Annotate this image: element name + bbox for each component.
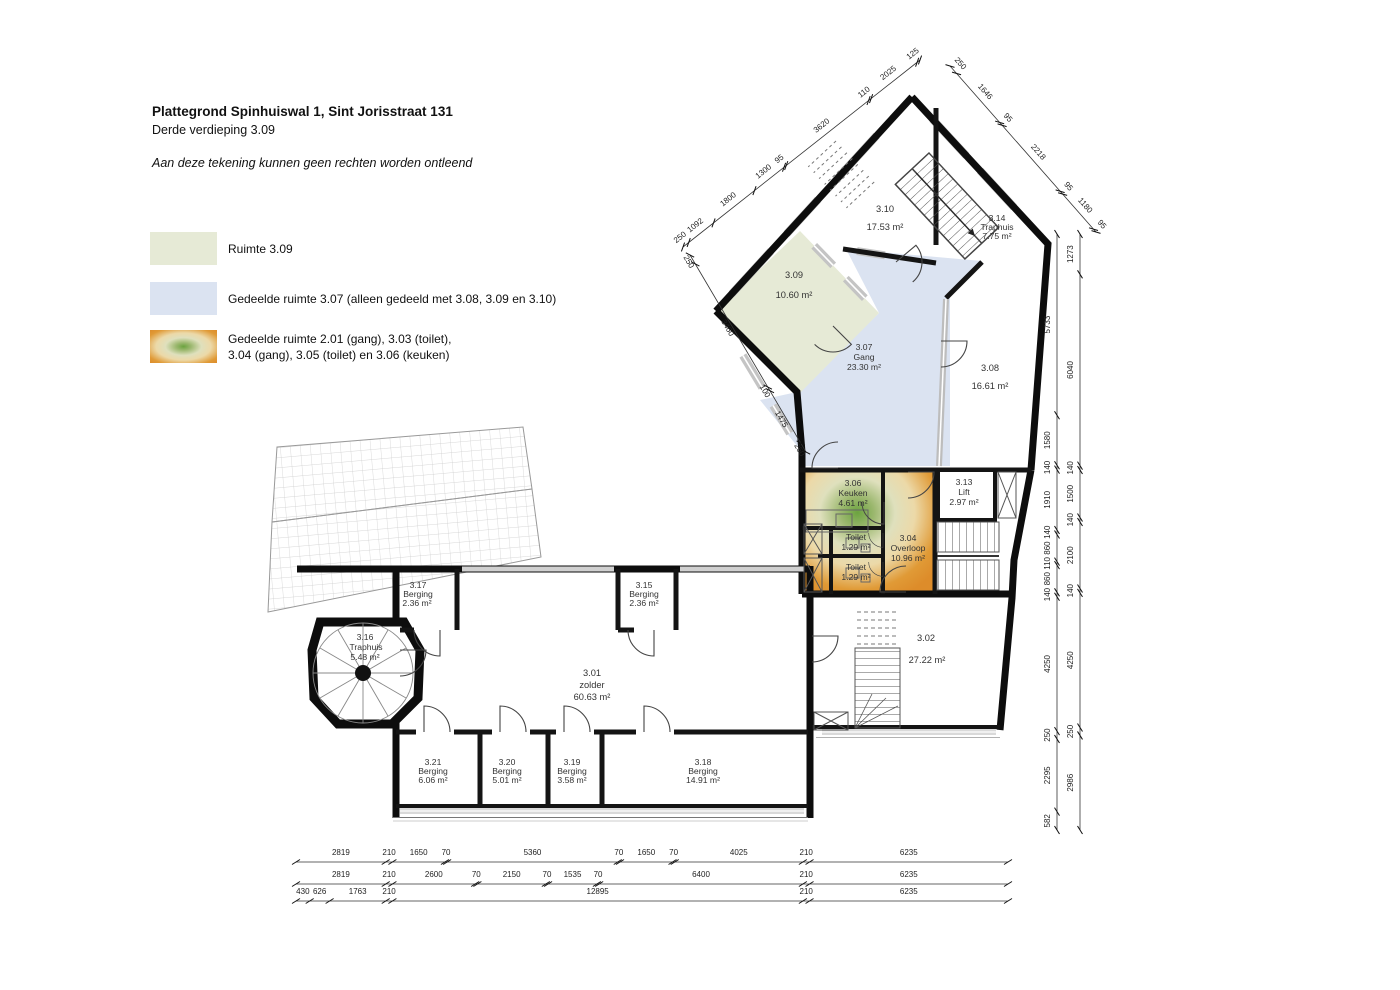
dim-label: 4250: [1066, 651, 1075, 669]
dim-label: 6040: [1066, 361, 1075, 379]
room-area: 17.53 m²: [867, 222, 904, 232]
dim-label: 5733: [1043, 315, 1052, 333]
room-id: 3.08: [981, 363, 999, 373]
dim-label: 2100: [1066, 546, 1075, 564]
room-name: Toilet: [846, 562, 867, 572]
title-block: Plattegrond Spinhuiswal 1, Sint Jorisstr…: [152, 103, 453, 139]
room-label-3.21: 3.21 Berging 6.06 m²: [418, 757, 448, 785]
room-area: 10.60 m²: [776, 290, 813, 300]
legend-label: Gedeelde ruimte 3.07 (alleen gedeeld met…: [228, 291, 556, 307]
dim-chain-right-inner: 5733158014019101408601108601404250250229…: [1043, 230, 1060, 834]
dim-label: 5360: [524, 848, 542, 857]
dim-label: 70: [442, 848, 451, 857]
room-label-3.08: 3.08 16.61 m²: [972, 363, 1009, 391]
dim-label: 1535: [564, 870, 582, 879]
room-name: Overloop: [891, 543, 926, 553]
dim-label: 582: [1043, 814, 1052, 828]
room-area: 60.63 m²: [574, 692, 611, 702]
legend-item-ruimte-309: Ruimte 3.09: [150, 232, 293, 265]
room-area: 5.01 m²: [492, 775, 521, 785]
dim-label: 430: [296, 887, 310, 896]
room-name: Gang: [853, 352, 874, 362]
room-id: 3.16: [357, 632, 374, 642]
room-label-3.10: 3.10 17.53 m²: [867, 204, 904, 232]
dim-label: 140: [1066, 513, 1075, 527]
dim-label: 250: [1066, 724, 1075, 738]
room-name: Keuken: [838, 488, 867, 498]
room-id: 3.06: [845, 478, 862, 488]
room-area: 1.29 m²: [841, 542, 870, 552]
dim-label: 6235: [900, 848, 918, 857]
dim-label: 100: [758, 383, 773, 400]
dim-label: 95: [773, 152, 786, 165]
dim-label: 210: [800, 848, 814, 857]
dim-label: 2295: [1043, 766, 1052, 784]
dim-label: 250: [953, 55, 969, 71]
room-area: 5.48 m²: [350, 652, 379, 662]
room-area: 27.22 m²: [909, 655, 946, 665]
room-id: 3.02: [917, 633, 935, 643]
dim-label: 4250: [1043, 654, 1052, 672]
dim-label: 2819: [332, 848, 350, 857]
dim-label: 95: [1002, 111, 1015, 124]
dim-label: 1763: [349, 887, 367, 896]
stairs-overloop: [937, 522, 999, 590]
dim-label: 95: [1062, 180, 1075, 193]
page-title: Plattegrond Spinhuiswal 1, Sint Jorisstr…: [152, 103, 453, 121]
dim-label: 210: [800, 887, 814, 896]
room-area: 2.36 m²: [629, 598, 658, 608]
dim-label: 70: [542, 870, 551, 879]
dim-label: 70: [669, 848, 678, 857]
dim-label: 70: [614, 848, 623, 857]
dim-label: 860: [1043, 541, 1052, 555]
dim-label: 1650: [637, 848, 655, 857]
room-area: 6.06 m²: [418, 775, 447, 785]
disclaimer-text: Aan deze tekening kunnen geen rechten wo…: [152, 156, 472, 170]
room-label-3.02: 3.02 27.22 m²: [909, 633, 946, 665]
room-area: 10.96 m²: [891, 553, 925, 563]
page-subtitle: Derde verdieping 3.09: [152, 121, 453, 139]
dim-label: 140: [1043, 587, 1052, 601]
stairs-3.02: [855, 612, 900, 728]
dim-label: 2600: [425, 870, 443, 879]
dim-label: 95: [1096, 218, 1109, 231]
room-label-3.01: 3.01 zolder 60.63 m²: [574, 668, 611, 702]
room-id: 3.10: [876, 204, 894, 214]
dim-label: 140: [1043, 460, 1052, 474]
dim-label: 860: [1043, 572, 1052, 586]
room-area: 7.75 m²: [982, 231, 1011, 241]
room-area: 2.36 m²: [402, 598, 431, 608]
legend-swatch-orange-gradient: [150, 330, 217, 363]
dim-label: 1500: [1066, 484, 1075, 502]
dim-label: 140: [1066, 583, 1075, 597]
dim-label: 140: [1066, 461, 1075, 475]
dim-label: 6235: [900, 887, 918, 896]
dim-label: 210: [382, 870, 396, 879]
dim-label: 250: [1043, 728, 1052, 742]
dim-label: 2150: [503, 870, 521, 879]
room-name: Toilet: [846, 532, 867, 542]
dim-label: 6235: [900, 870, 918, 879]
room-id: 3.13: [956, 477, 973, 487]
floor-plan-page: Plattegrond Spinhuiswal 1, Sint Jorisstr…: [0, 0, 1400, 990]
room-area: 2.97 m²: [949, 497, 978, 507]
dim-label: 250: [672, 229, 688, 245]
legend-label: Gedeelde ruimte 2.01 (gang), 3.03 (toile…: [228, 331, 451, 363]
dim-label: 6400: [692, 870, 710, 879]
room-label-3.18: 3.18 Berging 14.91 m²: [686, 757, 720, 785]
legend-label: Ruimte 3.09: [228, 241, 293, 257]
dim-label: 210: [382, 887, 396, 896]
room-area: 3.58 m²: [557, 775, 586, 785]
room-area: 4.61 m²: [838, 498, 867, 508]
dim-chain-bottom-3: 4306261763210128952106235: [292, 887, 1012, 904]
dim-chain-bottom-2: 281921026007021507015357064002106235: [292, 870, 1012, 887]
legend-swatch-green: [150, 232, 217, 265]
dim-label: 12895: [587, 887, 610, 896]
room-id: 3.04: [900, 533, 917, 543]
dim-label: 2986: [1066, 773, 1075, 791]
room-area: 16.61 m²: [972, 381, 1009, 391]
floor-plan-drawing: 3.01 zolder 60.63 m² 3.02 27.22 m² 3.06 …: [0, 0, 1400, 990]
room-area: 14.91 m²: [686, 775, 720, 785]
room-label-3.20: 3.20 Berging 5.01 m²: [492, 757, 522, 785]
room-area: 23.30 m²: [847, 362, 881, 372]
room-id: 3.01: [583, 668, 601, 678]
dim-label: 1910: [1043, 490, 1052, 508]
dim-label: 140: [1043, 525, 1052, 539]
room-name: Traphuis: [349, 642, 382, 652]
dim-label: 70: [472, 870, 481, 879]
dim-label: 2819: [332, 870, 350, 879]
room-name: zolder: [579, 680, 604, 690]
room-label-3.15: 3.15 Berging 2.36 m²: [629, 580, 659, 608]
room-area: 1.29 m²: [841, 572, 870, 582]
dim-label: 4025: [730, 848, 748, 857]
room-label-3.19: 3.19 Berging 3.58 m²: [557, 757, 587, 785]
dim-label: 250: [681, 254, 696, 271]
legend-item-gedeelde-307: Gedeelde ruimte 3.07 (alleen gedeeld met…: [150, 282, 556, 315]
dim-label: 110: [1043, 556, 1052, 569]
dim-label: 210: [800, 870, 814, 879]
legend-item-gedeelde-201: Gedeelde ruimte 2.01 (gang), 3.03 (toile…: [150, 330, 451, 363]
dim-chain-right-outer: 127360401401500140210014042502502986: [1066, 230, 1083, 834]
dim-label: 626: [313, 887, 327, 896]
dim-label: 210: [382, 848, 396, 857]
dim-label: 1650: [410, 848, 428, 857]
dim-label: 1580: [1043, 431, 1052, 449]
legend-swatch-blue: [150, 282, 217, 315]
dim-label: 70: [594, 870, 603, 879]
dim-label: 1273: [1066, 245, 1075, 263]
room-id: 3.07: [856, 342, 873, 352]
roof-hatch: [268, 427, 541, 612]
dim-chain-bottom-1: 281921016507053607016507040252106235: [292, 848, 1012, 865]
room-id: 3.09: [785, 270, 803, 280]
room-name: Lift: [958, 487, 970, 497]
